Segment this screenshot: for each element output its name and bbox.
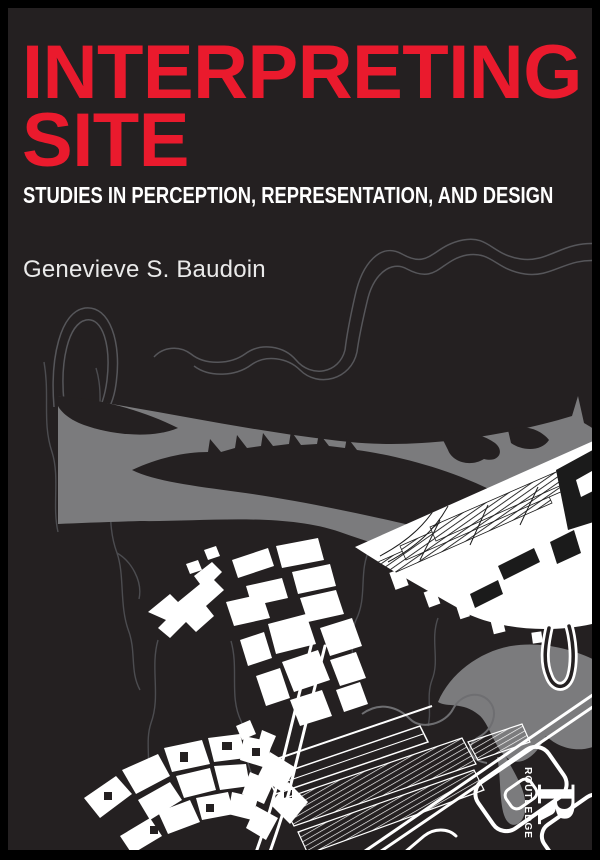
title-line-2: SITE	[22, 107, 582, 175]
routledge-wordmark: ROUTLEDGE	[523, 767, 534, 839]
building-cluster-center	[148, 538, 368, 726]
book-subtitle: STUDIES IN PERCEPTION, REPRESENTATION, A…	[23, 182, 553, 209]
title-line-1: INTERPRETING	[22, 39, 582, 107]
author-name: Genevieve S. Baudoin	[23, 256, 266, 284]
routledge-monogram-icon: R	[537, 782, 576, 824]
book-cover: INTERPRETING SITE STUDIES IN PERCEPTION,…	[0, 0, 600, 860]
routledge-logo-rotated: R ROUTLEDGE	[514, 760, 584, 846]
book-title: INTERPRETING SITE	[22, 39, 582, 174]
routledge-logo: R ROUTLEDGE	[514, 760, 584, 846]
cover-background: INTERPRETING SITE STUDIES IN PERCEPTION,…	[8, 8, 592, 850]
